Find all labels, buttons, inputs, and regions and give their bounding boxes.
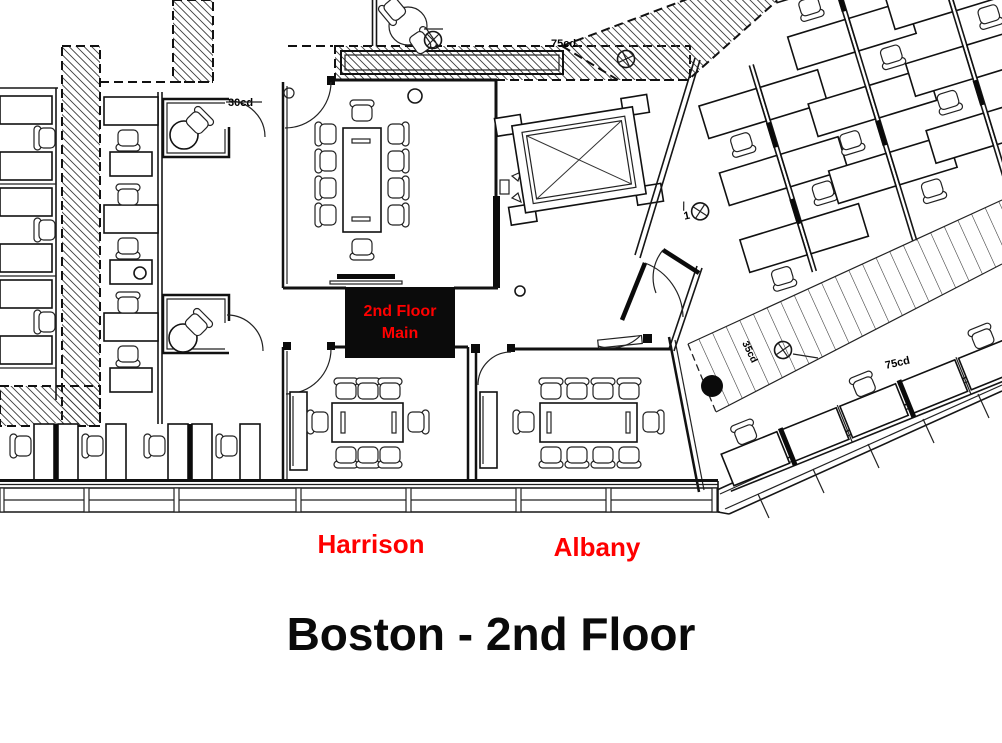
chair [116,346,140,367]
desk [0,152,52,180]
desk [110,368,152,392]
chair [315,149,336,173]
desk [106,424,126,480]
chair [116,130,140,151]
chair [591,447,615,468]
chair [315,176,336,200]
chair [10,434,31,458]
wall-fixture [500,172,521,202]
chair [565,447,589,468]
main-floor-marker: 2nd Floor Main [345,287,455,358]
window-label-75cd-right: 75cd [884,355,911,372]
albany-room [471,286,704,492]
albany-room-label: Albany [554,532,641,562]
desk [967,28,1002,78]
desk [926,113,993,163]
chair [307,410,328,434]
chair [34,126,55,150]
conference-room-top [283,76,521,288]
conference-table [343,128,381,232]
ceiling-fixture [515,286,525,296]
window-label-75cd-top: 75cd [551,38,576,50]
chair [728,131,757,158]
desk [740,222,807,272]
bottom-desk-row [10,424,260,480]
chair [116,238,140,259]
door-hinge [507,344,515,352]
door-leaf [622,263,645,320]
door-leaf-top [598,336,643,349]
desk [34,424,54,480]
chair [591,378,615,399]
chair [513,410,534,434]
door-leaf [663,250,699,273]
floor-plan-drawing: 1 30cd 75cd 75cd 35cd 2nd Floor Main Har… [0,0,1002,743]
chair [539,447,563,468]
chair [378,447,402,468]
door-arc [478,352,511,385]
desk [104,313,158,341]
chair [34,310,55,334]
chair [350,239,374,260]
chair [116,292,140,313]
chair [388,149,409,173]
chair [34,218,55,242]
chair [388,176,409,200]
fixture-count-label: 1 [683,210,691,223]
door-arc [645,263,683,317]
phone-room-bottom [163,295,263,353]
chair [315,203,336,227]
desk [0,96,52,124]
chair [877,43,906,70]
location-dot [701,375,723,397]
chair [356,447,380,468]
desk [788,20,855,70]
harrison-room-label: Harrison [318,529,425,559]
chair [565,378,589,399]
harrison-room [283,342,476,481]
desk [0,336,52,364]
floor-plan-page: 1 30cd 75cd 75cd 35cd 2nd Floor Main Har… [0,0,1002,743]
chair [356,378,380,399]
chair [216,434,237,458]
chair [144,434,165,458]
desk [168,424,188,480]
chair [617,447,641,468]
desk [240,424,260,480]
chair [388,122,409,146]
chair [334,447,358,468]
door-arc [653,250,663,293]
desk [110,152,152,176]
desk [906,46,973,96]
chair [934,89,963,116]
chair [617,378,641,399]
marker-box [345,287,455,358]
chair [388,203,409,227]
desk [801,204,868,254]
chair [769,265,798,292]
chair [408,410,429,434]
desk [192,424,212,480]
page-title: Boston - 2nd Floor [287,608,696,660]
marker-line1: 2nd Floor [364,303,437,320]
chair [334,378,358,399]
desk [719,155,786,205]
desk [721,432,789,486]
wall-display [337,274,395,279]
desk [840,384,908,438]
chair [539,378,563,399]
desk [58,424,78,480]
light-fixture-icon [690,201,710,221]
chair [837,129,866,156]
desk [0,188,52,216]
door-label-30cd: 30cd [228,97,253,109]
door-arc [286,349,331,394]
door-hinge [283,342,291,350]
elevator-core [494,94,663,225]
chair [350,100,374,121]
desk [104,97,158,125]
desk [0,244,52,272]
conference-table [540,403,637,442]
desk [0,280,52,308]
marker-line2: Main [382,325,418,342]
chair [378,378,402,399]
door-hinge [471,344,480,353]
chair [82,434,103,458]
desk [699,88,766,138]
desk [104,205,158,233]
desk [885,0,952,29]
chair [975,3,1002,30]
door-hinge [327,342,335,350]
chair [918,177,947,204]
chair [796,0,825,22]
ceiling-fixture [408,89,422,103]
chair [116,184,140,205]
door-arc [227,315,263,351]
chair [643,410,664,434]
chair [315,122,336,146]
